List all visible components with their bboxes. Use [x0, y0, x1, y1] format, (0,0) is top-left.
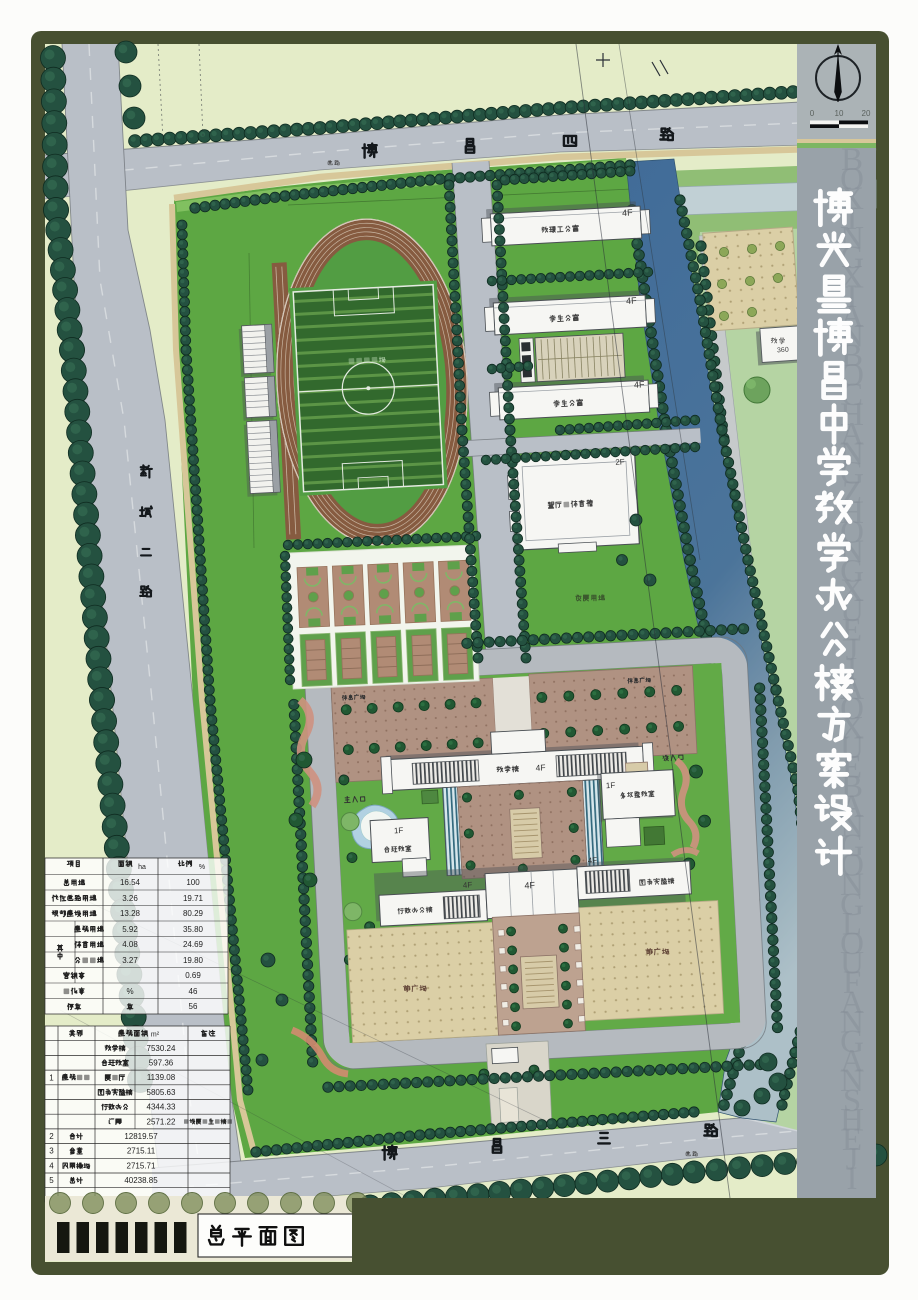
- svg-text:4F: 4F: [626, 295, 638, 306]
- svg-text:4344.33: 4344.33: [147, 1103, 176, 1112]
- svg-text:1139.08: 1139.08: [147, 1073, 176, 1082]
- svg-text:ha: ha: [138, 864, 146, 871]
- svg-text:3.26: 3.26: [122, 894, 138, 903]
- svg-text:0.69: 0.69: [185, 971, 201, 980]
- svg-text:2: 2: [49, 1132, 54, 1141]
- svg-text:2F: 2F: [615, 457, 625, 466]
- svg-text:3: 3: [49, 1147, 54, 1156]
- svg-text:2715.71: 2715.71: [127, 1161, 156, 1170]
- svg-text:20: 20: [862, 109, 871, 118]
- svg-text:4F: 4F: [634, 379, 646, 390]
- svg-text:1F: 1F: [394, 826, 404, 835]
- svg-text:35.80: 35.80: [183, 925, 204, 934]
- svg-text:5805.63: 5805.63: [147, 1088, 176, 1097]
- svg-text:56: 56: [189, 1002, 198, 1011]
- svg-text:7530.24: 7530.24: [147, 1044, 176, 1053]
- svg-text:4: 4: [49, 1161, 54, 1170]
- svg-text:2571.22: 2571.22: [147, 1117, 176, 1126]
- svg-text:10: 10: [835, 109, 844, 118]
- svg-text:0: 0: [810, 109, 815, 118]
- svg-text:13.28: 13.28: [120, 909, 141, 918]
- svg-text:19.80: 19.80: [183, 956, 204, 965]
- svg-text:19.71: 19.71: [183, 894, 204, 903]
- svg-text:5.92: 5.92: [122, 925, 138, 934]
- svg-text:4F: 4F: [622, 207, 634, 218]
- svg-text:1: 1: [49, 1074, 54, 1083]
- svg-text:4.08: 4.08: [122, 940, 138, 949]
- svg-text:4F: 4F: [524, 880, 536, 891]
- svg-text:2715.11: 2715.11: [127, 1147, 156, 1156]
- svg-text:80.29: 80.29: [183, 909, 204, 918]
- svg-text:3.27: 3.27: [122, 956, 138, 965]
- svg-text:4F: 4F: [463, 880, 473, 889]
- svg-text:1F: 1F: [606, 781, 616, 790]
- svg-text:5: 5: [49, 1176, 54, 1185]
- svg-text:I: I: [847, 1161, 858, 1197]
- svg-text:46: 46: [189, 987, 198, 996]
- svg-text:100: 100: [186, 878, 200, 887]
- svg-text:4F: 4F: [535, 762, 545, 773]
- svg-text:16.54: 16.54: [120, 878, 141, 887]
- svg-text:40238.85: 40238.85: [124, 1176, 158, 1185]
- svg-text:597.36: 597.36: [149, 1059, 174, 1068]
- svg-text:m²: m²: [151, 1031, 160, 1038]
- svg-text:360: 360: [777, 347, 789, 355]
- svg-text:12819.57: 12819.57: [124, 1132, 158, 1141]
- svg-text:24.69: 24.69: [183, 940, 204, 949]
- svg-text:4F: 4F: [588, 856, 598, 865]
- svg-text:%: %: [199, 864, 205, 871]
- svg-text:%: %: [126, 987, 133, 996]
